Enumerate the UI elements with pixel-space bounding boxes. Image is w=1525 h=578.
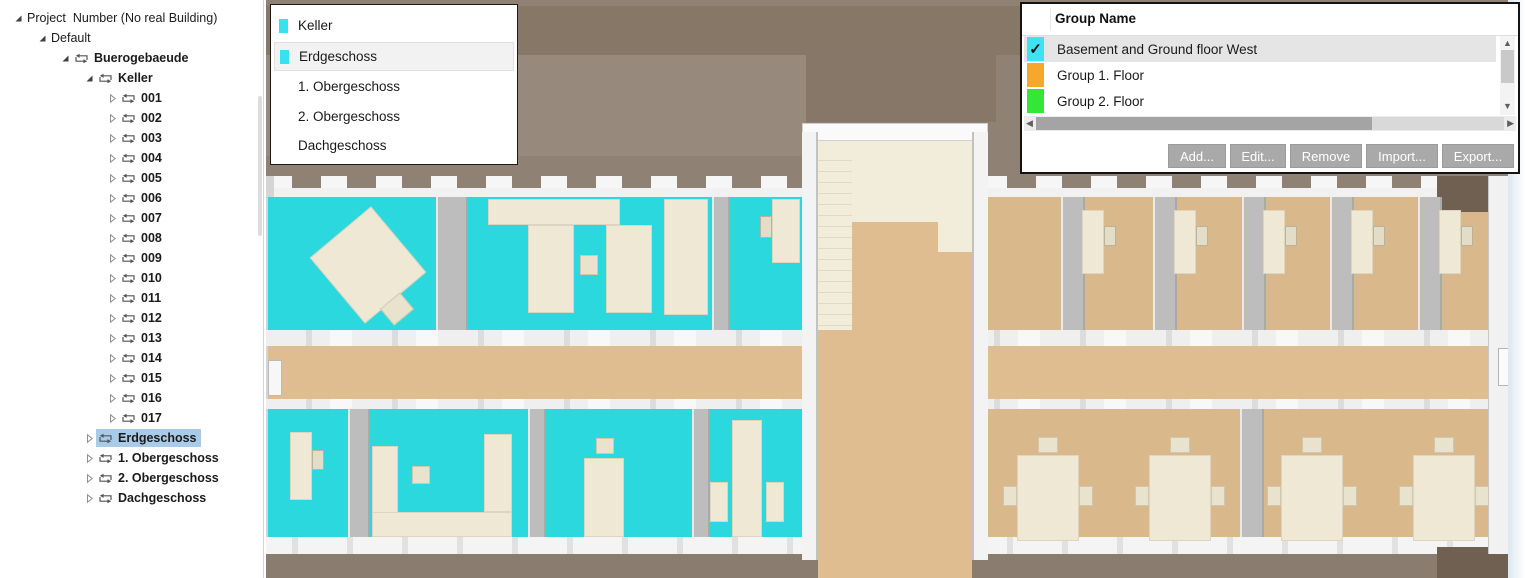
scroll-left-icon[interactable]: ◀	[1026, 119, 1033, 128]
tree-item-012[interactable]: 012	[106, 308, 166, 328]
desk	[772, 199, 800, 263]
tree-item-content[interactable]: 007	[119, 209, 166, 227]
collapsed-triangle-icon[interactable]	[106, 93, 119, 104]
tree-item-label: 008	[141, 231, 162, 245]
monitor	[312, 450, 324, 470]
tree-item-content[interactable]: Keller	[96, 69, 157, 87]
monitor	[1461, 226, 1473, 246]
chair	[1135, 486, 1149, 506]
tree-item-label: Default	[51, 31, 91, 45]
collapsed-triangle-icon[interactable]	[106, 313, 119, 324]
storey-color-chip	[279, 19, 288, 33]
chair	[1038, 437, 1058, 453]
swap-arrows-icon	[121, 93, 136, 104]
tree-item-010[interactable]: 010	[106, 268, 166, 288]
tree-item-content[interactable]: 012	[119, 309, 166, 327]
tree-item-016[interactable]: 016	[106, 388, 166, 408]
tree-item-label: 007	[141, 211, 162, 225]
tree-item-content[interactable]: Default	[49, 29, 95, 47]
tree-item-content[interactable]: Buerogebaeude	[72, 49, 192, 67]
tree-item-content[interactable]: 005	[119, 169, 166, 187]
tree-item-006[interactable]: 006	[106, 188, 166, 208]
swap-arrows-icon	[98, 453, 113, 464]
meeting-table	[1281, 455, 1343, 541]
swap-arrows-icon	[121, 213, 136, 224]
swap-arrows-icon	[121, 273, 136, 284]
group-item-label: Group 2. Floor	[1057, 94, 1144, 109]
tree-item-label: Dachgeschoss	[118, 491, 206, 505]
swap-arrows-icon	[98, 473, 113, 484]
chair	[1267, 486, 1281, 506]
swap-arrows-icon	[121, 153, 136, 164]
tree-item-project-number-no-real-building[interactable]: Project Number (No real Building)	[12, 8, 221, 28]
monitor	[1196, 226, 1208, 246]
partition-wall	[348, 409, 370, 537]
chair	[1343, 486, 1357, 506]
tree-item-label: Keller	[118, 71, 153, 85]
swap-arrows-icon	[98, 493, 113, 504]
tree-item-label: 014	[141, 351, 162, 365]
collapsed-triangle-icon[interactable]	[106, 393, 119, 404]
meeting-table	[1017, 455, 1079, 541]
edit-button[interactable]: Edit...	[1230, 144, 1286, 168]
tree-item-default[interactable]: Default	[36, 28, 95, 48]
tree-item-label: Erdgeschoss	[118, 431, 197, 445]
tree-item-label: 009	[141, 251, 162, 265]
group-list-header: Group Name	[1022, 4, 1518, 36]
expanded-triangle-icon[interactable]	[12, 13, 25, 24]
expanded-triangle-icon[interactable]	[36, 33, 49, 44]
collapsed-triangle-icon[interactable]	[106, 133, 119, 144]
chair	[1170, 437, 1190, 453]
collapsed-triangle-icon[interactable]	[83, 473, 96, 484]
tree-item-content[interactable]: 009	[119, 249, 166, 267]
tree-item-008[interactable]: 008	[106, 228, 166, 248]
collapsed-triangle-icon[interactable]	[106, 353, 119, 364]
tree-item-label: 001	[141, 91, 162, 105]
tree-item-017[interactable]: 017	[106, 408, 166, 428]
collapsed-triangle-icon[interactable]	[106, 153, 119, 164]
collapsed-triangle-icon[interactable]	[106, 413, 119, 424]
chair	[1003, 486, 1017, 506]
legend-item-label: Erdgeschoss	[299, 49, 377, 64]
tree-item-label: 012	[141, 311, 162, 325]
tree-item-content[interactable]: 2. Obergeschoss	[96, 469, 223, 487]
monitor	[1373, 226, 1385, 246]
exterior-dark-corner-ne	[1437, 176, 1490, 212]
desk	[488, 199, 620, 225]
swap-arrows-icon	[121, 193, 136, 204]
collapsed-triangle-icon[interactable]	[83, 433, 96, 444]
partition-wall	[528, 409, 546, 537]
tree-item-content[interactable]: 011	[119, 289, 165, 307]
tree-item-014[interactable]: 014	[106, 348, 166, 368]
swap-arrows-icon	[121, 353, 136, 364]
chair	[412, 466, 430, 484]
tree-item-002[interactable]: 002	[106, 108, 166, 128]
legend-item-label: Keller	[298, 18, 333, 33]
tree-item-label: 017	[141, 411, 162, 425]
expanded-triangle-icon[interactable]	[83, 73, 96, 84]
tree-item-005[interactable]: 005	[106, 168, 166, 188]
swap-arrows-icon	[121, 293, 136, 304]
desk	[372, 512, 512, 537]
scroll-down-icon[interactable]: ▼	[1503, 102, 1512, 111]
tree-item-001[interactable]: 001	[106, 88, 166, 108]
desk	[606, 225, 652, 313]
legend-item-label: 2. Obergeschoss	[298, 109, 400, 124]
collapsed-triangle-icon[interactable]	[106, 113, 119, 124]
collapsed-triangle-icon[interactable]	[106, 173, 119, 184]
tree-item-content[interactable]: 013	[119, 329, 166, 347]
desk	[664, 199, 708, 315]
chair	[1399, 486, 1413, 506]
chair	[1211, 486, 1225, 506]
stair-core-west-wall	[802, 132, 818, 560]
expanded-triangle-icon[interactable]	[59, 53, 72, 64]
desk	[732, 420, 762, 537]
add-button[interactable]: Add...	[1168, 144, 1226, 168]
group-item-label: Basement and Ground floor West	[1057, 42, 1257, 57]
monitor	[1285, 226, 1297, 246]
swap-arrows-icon	[121, 233, 136, 244]
monitor	[760, 216, 772, 238]
group-name-column-title: Group Name	[1055, 11, 1136, 26]
tree-item-content[interactable]: 014	[119, 349, 166, 367]
chair	[1434, 437, 1454, 453]
swap-arrows-icon	[121, 133, 136, 144]
collapsed-triangle-icon[interactable]	[106, 253, 119, 264]
group-horizontal-scrollbar[interactable]: ◀ ▶	[1024, 116, 1516, 131]
remove-button[interactable]: Remove	[1290, 144, 1362, 168]
storey-color-chip	[280, 50, 289, 64]
tree-item-004[interactable]: 004	[106, 148, 166, 168]
swap-arrows-icon	[98, 73, 113, 84]
tree-item-content[interactable]: 017	[119, 409, 166, 427]
panel-divider	[263, 0, 264, 578]
stair-core-east-wall	[972, 132, 988, 560]
group-item-label: Group 1. Floor	[1057, 68, 1144, 83]
desk	[584, 458, 624, 537]
tree-item-label: Buerogebaeude	[94, 51, 188, 65]
legend-item-erdgeschoss[interactable]: Erdgeschoss	[274, 42, 514, 71]
swap-arrows-icon	[121, 113, 136, 124]
desk	[1174, 210, 1196, 274]
scroll-up-icon[interactable]: ▲	[1503, 39, 1512, 48]
group-item-group-1-floor[interactable]: Group 1. Floor	[1024, 62, 1496, 88]
tree-item-content[interactable]: 006	[119, 189, 166, 207]
scroll-right-icon[interactable]: ▶	[1507, 119, 1514, 128]
chair	[1302, 437, 1322, 453]
swap-arrows-icon	[121, 393, 136, 404]
group-vertical-scrollbar[interactable]: ▲ ▼	[1500, 36, 1515, 115]
legend-item-keller[interactable]: Keller	[274, 11, 514, 40]
collapsed-triangle-icon[interactable]	[83, 493, 96, 504]
tree-item-1-obergeschoss[interactable]: 1. Obergeschoss	[83, 448, 223, 468]
swap-arrows-icon	[121, 333, 136, 344]
tree-item-label: 011	[141, 291, 161, 305]
tree-item-erdgeschoss[interactable]: Erdgeschoss	[83, 428, 201, 448]
tree-item-label: Project Number (No real Building)	[27, 11, 217, 25]
group-item-group-2-floor[interactable]: Group 2. Floor	[1024, 88, 1496, 114]
swap-arrows-icon	[121, 253, 136, 264]
desk	[1351, 210, 1373, 274]
stair-core-north-wall	[802, 123, 988, 141]
collapsed-triangle-icon[interactable]	[106, 233, 119, 244]
tree-item-label: 2. Obergeschoss	[118, 471, 219, 485]
tree-item-007[interactable]: 007	[106, 208, 166, 228]
tree-scrollbar[interactable]	[258, 96, 262, 236]
group-button-bar: Add...Edit...RemoveImport...Export...	[1168, 144, 1514, 168]
monitor	[1104, 226, 1116, 246]
tree-item-013[interactable]: 013	[106, 328, 166, 348]
tree-item-2-obergeschoss[interactable]: 2. Obergeschoss	[83, 468, 223, 488]
collapsed-triangle-icon[interactable]	[106, 293, 119, 304]
tree-item-label: 006	[141, 191, 162, 205]
chair	[580, 255, 598, 275]
application-window: Project Number (No real Building)Default…	[0, 0, 1525, 578]
chair	[1079, 486, 1093, 506]
tree-item-011[interactable]: 011	[106, 288, 165, 308]
desk	[290, 432, 312, 500]
chair	[596, 438, 614, 454]
corridor-west-door	[268, 360, 282, 396]
tree-item-content[interactable]: Project Number (No real Building)	[25, 9, 221, 27]
partition-wall	[692, 409, 710, 537]
tree-item-content[interactable]: Dachgeschoss	[96, 489, 210, 507]
legend-item-1-obergeschoss[interactable]: 1. Obergeschoss	[274, 72, 514, 101]
group-color-chip-checked[interactable]: ✓	[1027, 37, 1044, 61]
stair-flight-west	[818, 150, 852, 330]
swap-arrows-icon	[121, 413, 136, 424]
tree-item-content[interactable]: 015	[119, 369, 166, 387]
collapsed-triangle-icon[interactable]	[106, 373, 119, 384]
legend-item-label: 1. Obergeschoss	[298, 79, 400, 94]
legend-item-dachgeschoss[interactable]: Dachgeschoss	[274, 131, 514, 160]
legend-item-2-obergeschoss[interactable]: 2. Obergeschoss	[274, 102, 514, 131]
stair-flight-east-ledge	[938, 222, 972, 252]
import-button[interactable]: Import...	[1366, 144, 1438, 168]
tree-item-content[interactable]: 004	[119, 149, 166, 167]
tree-item-keller[interactable]: Keller	[83, 68, 157, 88]
tree-item-content[interactable]: 016	[119, 389, 166, 407]
partition-wall	[712, 197, 730, 330]
tree-item-content[interactable]: 1. Obergeschoss	[96, 449, 223, 467]
desk	[1439, 210, 1461, 274]
desk	[1082, 210, 1104, 274]
tree-item-buerogebaeude[interactable]: Buerogebaeude	[59, 48, 192, 68]
tree-item-label: 015	[141, 371, 162, 385]
horizontal-scroll-thumb[interactable]	[1036, 117, 1372, 130]
group-manager-popup: Group Name ✓Basement and Ground floor We…	[1020, 2, 1520, 174]
tree-item-015[interactable]: 015	[106, 368, 166, 388]
group-color-chip[interactable]	[1027, 89, 1044, 113]
desk	[528, 225, 574, 313]
desk	[1263, 210, 1285, 274]
swap-arrows-icon	[121, 373, 136, 384]
tree-item-003[interactable]: 003	[106, 128, 166, 148]
tree-item-content[interactable]: 001	[119, 89, 166, 107]
tree-item-label: 002	[141, 111, 162, 125]
group-item-basement-and-ground-floor-west[interactable]: ✓Basement and Ground floor West	[1024, 36, 1496, 62]
tree-item-content[interactable]: 008	[119, 229, 166, 247]
terrain-band-stair-back	[806, 55, 996, 122]
desk	[766, 482, 784, 522]
tree-item-content[interactable]: 002	[119, 109, 166, 127]
tree-item-content[interactable]: Erdgeschoss	[96, 429, 201, 447]
desk	[710, 482, 728, 522]
collapsed-triangle-icon[interactable]	[83, 453, 96, 464]
collapsed-triangle-icon[interactable]	[106, 193, 119, 204]
swap-arrows-icon	[74, 53, 89, 64]
tree-item-label: 013	[141, 331, 162, 345]
export-button[interactable]: Export...	[1442, 144, 1514, 168]
tree-item-label: 003	[141, 131, 162, 145]
tree-item-content[interactable]: 010	[119, 269, 166, 287]
partition-wall	[1240, 409, 1264, 537]
desk	[484, 434, 512, 512]
vertical-scroll-thumb[interactable]	[1501, 50, 1514, 83]
project-tree-panel: Project Number (No real Building)Default…	[0, 0, 264, 578]
tree-item-label: 1. Obergeschoss	[118, 451, 219, 465]
tree-item-009[interactable]: 009	[106, 248, 166, 268]
meeting-table	[1149, 455, 1211, 541]
swap-arrows-icon	[121, 313, 136, 324]
tree-item-dachgeschoss[interactable]: Dachgeschoss	[83, 488, 210, 508]
swap-arrows-icon	[98, 433, 113, 444]
tree-item-label: 016	[141, 391, 162, 405]
tree-item-label: 005	[141, 171, 162, 185]
storey-legend-popup: KellerErdgeschoss1. Obergeschoss2. Oberg…	[270, 4, 518, 165]
meeting-table	[1413, 455, 1475, 541]
collapsed-triangle-icon[interactable]	[106, 213, 119, 224]
header-column-separator	[1050, 8, 1051, 31]
tree-item-content[interactable]: 003	[119, 129, 166, 147]
legend-item-label: Dachgeschoss	[298, 138, 387, 153]
collapsed-triangle-icon[interactable]	[106, 273, 119, 284]
collapsed-triangle-icon[interactable]	[106, 333, 119, 344]
tree-item-label: 004	[141, 151, 162, 165]
group-color-chip[interactable]	[1027, 63, 1044, 87]
partition-wall	[436, 197, 468, 330]
tree-item-label: 010	[141, 271, 162, 285]
swap-arrows-icon	[121, 173, 136, 184]
chair	[1475, 486, 1489, 506]
